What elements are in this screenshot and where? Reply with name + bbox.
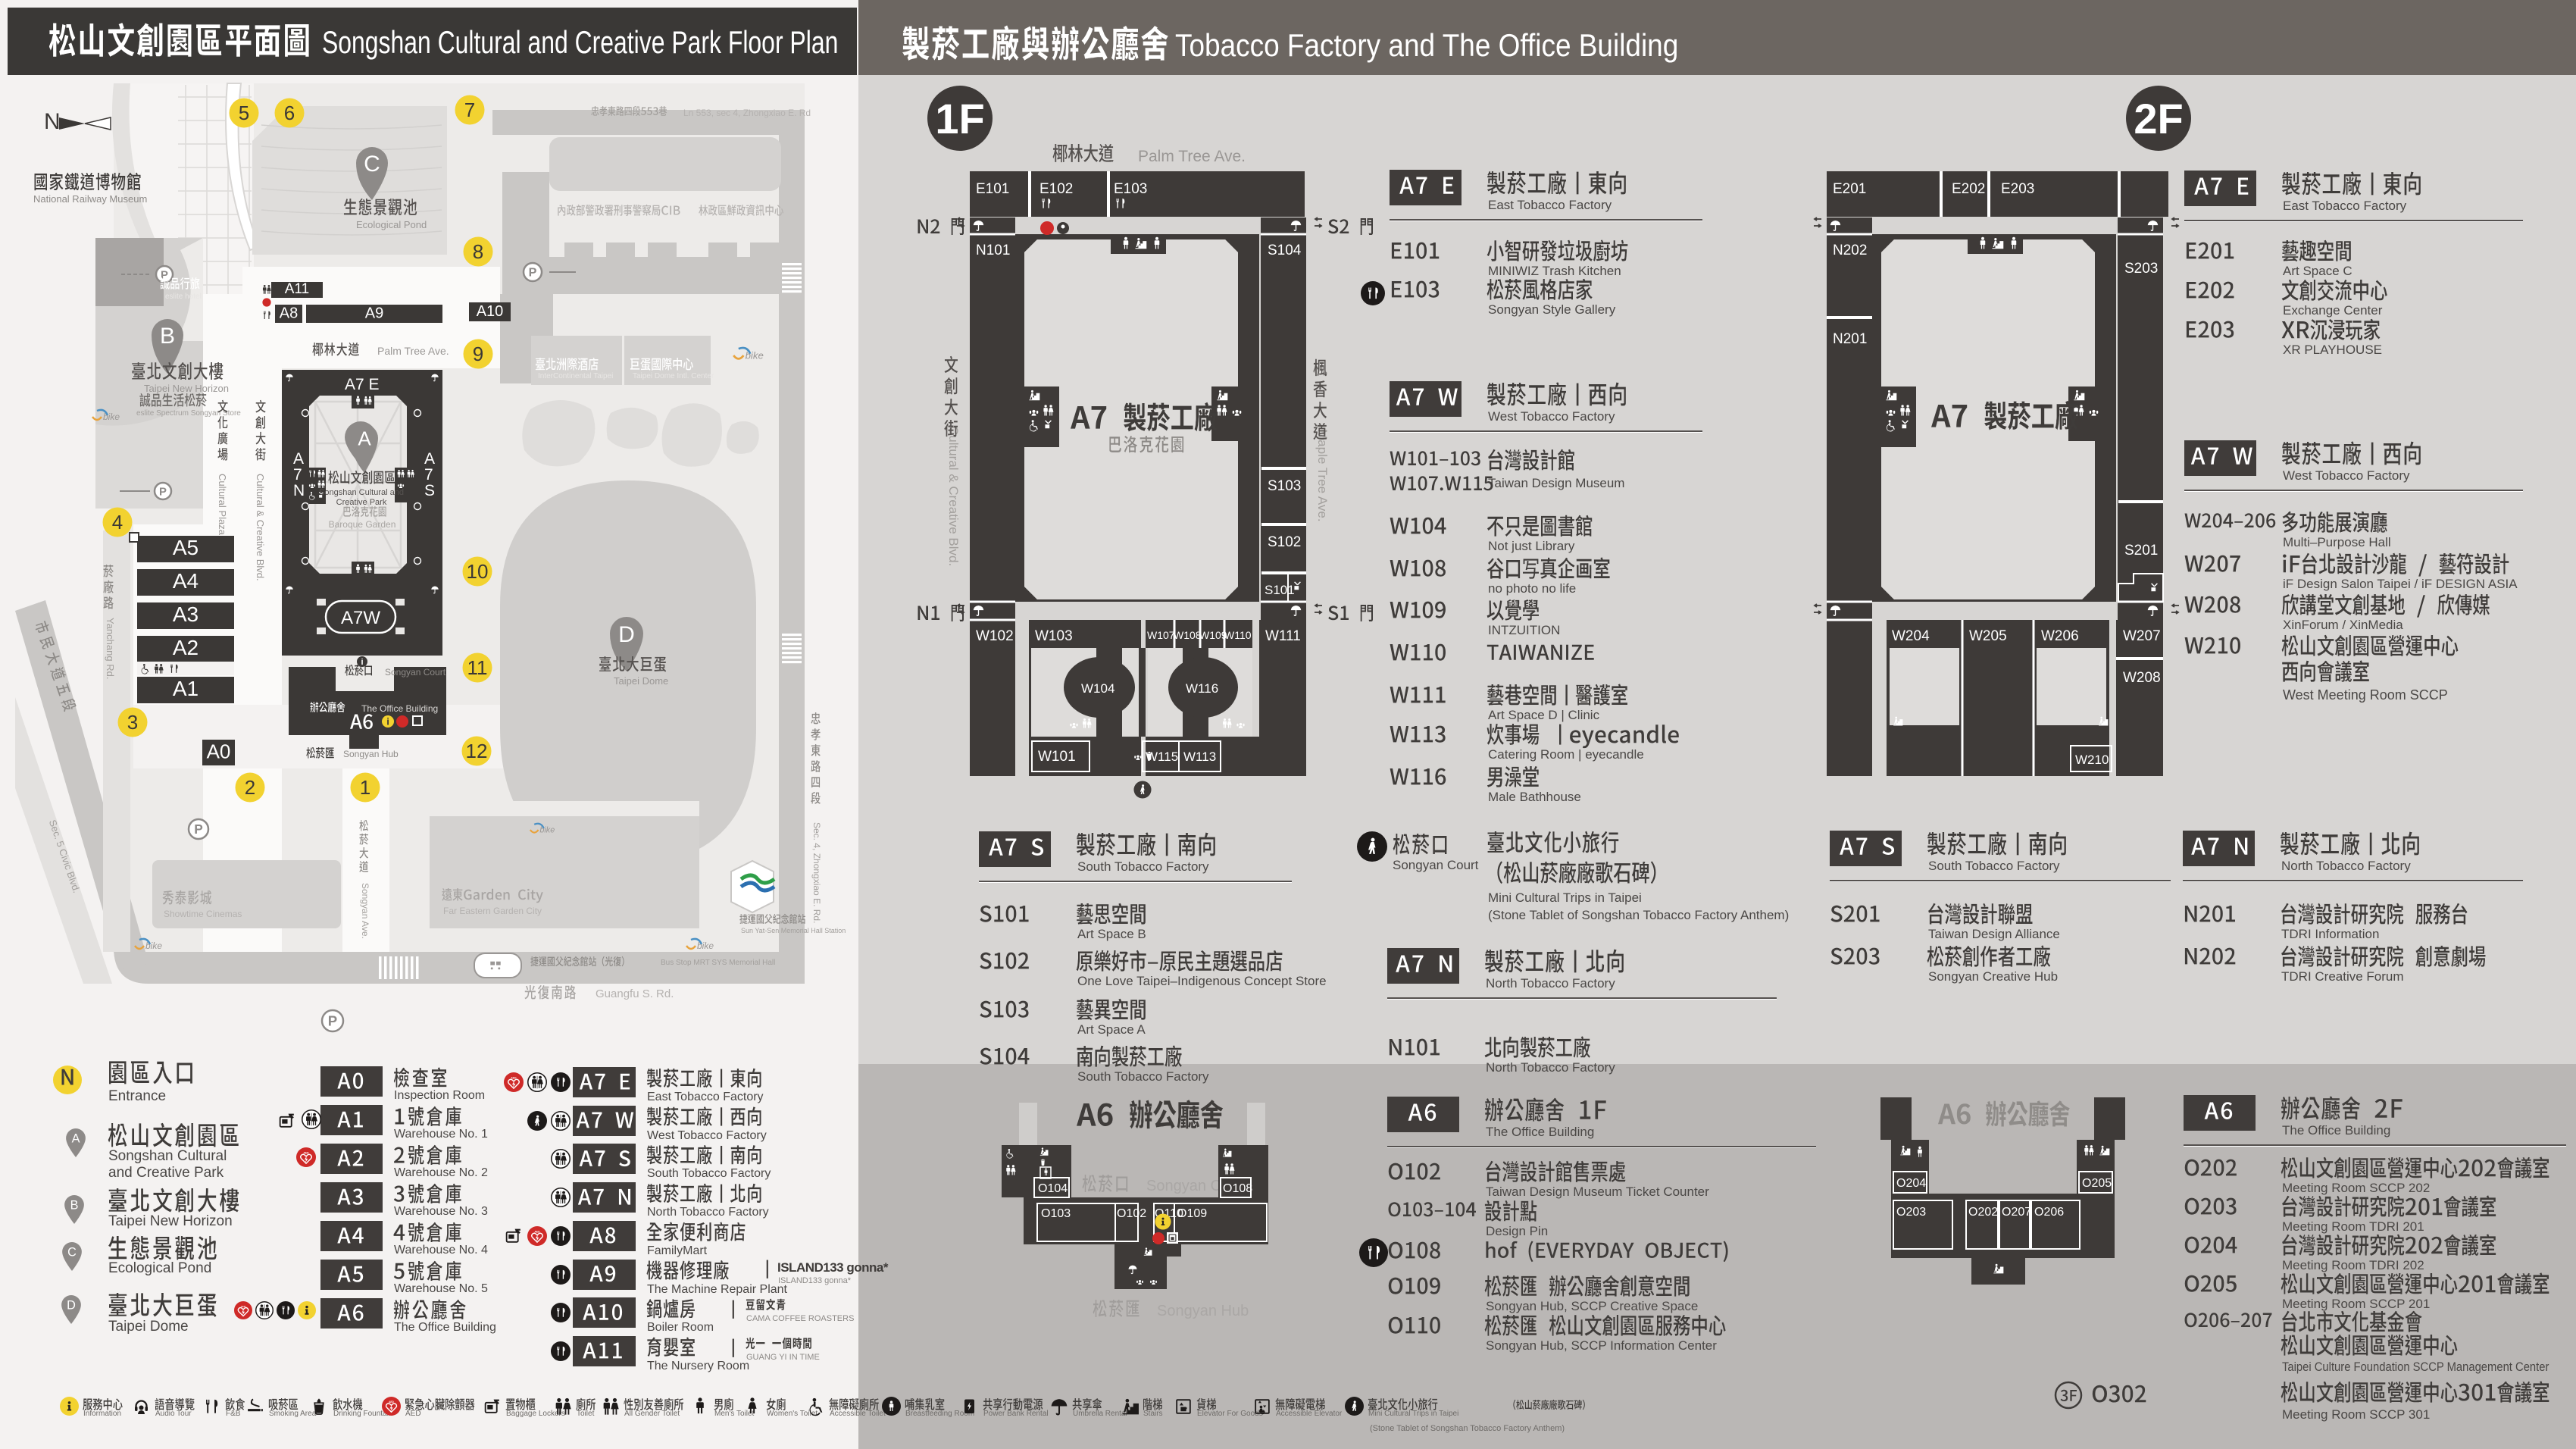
- svg-text:W206: W206: [2041, 628, 2079, 644]
- svg-text:S101: S101: [1265, 583, 1295, 597]
- svg-text:D: D: [67, 1298, 76, 1312]
- svg-text:O202: O202: [1968, 1206, 1998, 1219]
- svg-text:O206: O206: [2034, 1206, 2064, 1219]
- svg-text:2F: 2F: [2134, 95, 2183, 142]
- svg-text:W210: W210: [2075, 753, 2109, 767]
- svg-text:W111: W111: [1265, 628, 1301, 644]
- svg-text:O207: O207: [2002, 1206, 2031, 1219]
- svg-text:W102: W102: [976, 628, 1014, 644]
- svg-text:O102: O102: [1117, 1207, 1146, 1220]
- svg-text:S104: S104: [1268, 243, 1302, 258]
- svg-text:E202: E202: [1952, 181, 1985, 197]
- svg-text:E103: E103: [1114, 181, 1147, 197]
- svg-text:AED: AED: [535, 1230, 541, 1233]
- svg-text:O205: O205: [2082, 1177, 2112, 1190]
- svg-text:AED: AED: [389, 1400, 394, 1404]
- svg-text:AED: AED: [511, 1076, 517, 1079]
- svg-text:N101: N101: [976, 243, 1010, 258]
- svg-text:E203: E203: [2001, 181, 2034, 197]
- svg-text:W205: W205: [1969, 628, 2007, 644]
- svg-text:O204: O204: [1896, 1177, 1926, 1190]
- svg-text:W104: W104: [1081, 681, 1114, 696]
- svg-text:S201: S201: [2124, 543, 2158, 559]
- svg-text:O104: O104: [1038, 1182, 1068, 1195]
- svg-text:W101: W101: [1038, 749, 1076, 765]
- svg-text:W113: W113: [1183, 750, 1216, 764]
- svg-text:W108: W108: [1174, 629, 1202, 641]
- svg-text:O108: O108: [1223, 1182, 1252, 1195]
- svg-text:S102: S102: [1268, 534, 1301, 550]
- svg-text:O203: O203: [1896, 1206, 1926, 1219]
- svg-text:E101: E101: [976, 181, 1009, 197]
- svg-text:N201: N201: [1833, 331, 1867, 347]
- svg-text:W204: W204: [1892, 628, 1930, 644]
- svg-text:N202: N202: [1833, 243, 1867, 258]
- svg-text:A: A: [72, 1131, 80, 1145]
- svg-text:W208: W208: [2123, 670, 2161, 686]
- svg-text:E102: E102: [1039, 181, 1073, 197]
- svg-text:S103: S103: [1268, 478, 1301, 494]
- svg-text:W110: W110: [1224, 629, 1252, 641]
- svg-text:W103: W103: [1035, 628, 1073, 644]
- svg-text:W107: W107: [1147, 629, 1175, 641]
- svg-text:E201: E201: [1833, 181, 1866, 197]
- svg-text:B: B: [70, 1198, 79, 1212]
- svg-text:S203: S203: [2124, 261, 2158, 277]
- svg-text:1F: 1F: [935, 95, 984, 142]
- svg-text:O103: O103: [1041, 1207, 1071, 1220]
- svg-text:AED: AED: [304, 1151, 310, 1154]
- svg-text:C: C: [67, 1245, 77, 1259]
- svg-text:AED: AED: [241, 1305, 246, 1308]
- svg-text:W207: W207: [2123, 628, 2161, 644]
- svg-text:W109: W109: [1199, 629, 1227, 641]
- svg-text:O109: O109: [1177, 1207, 1207, 1220]
- svg-text:W116: W116: [1186, 681, 1218, 696]
